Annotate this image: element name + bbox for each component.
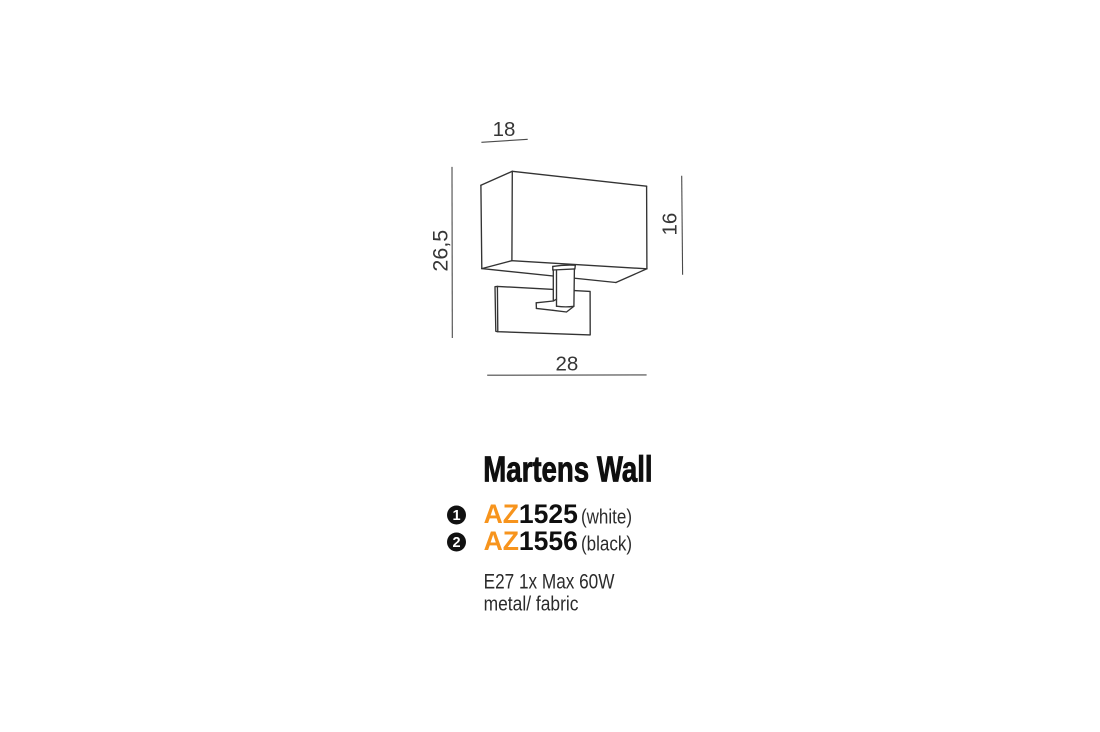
svg-text:metal/ fabric: metal/ fabric [484,593,579,616]
svg-text:18: 18 [493,118,516,141]
svg-text:1: 1 [452,508,460,524]
svg-text:E27 1x Max 60W: E27 1x Max 60W [484,570,615,594]
svg-text:28: 28 [555,353,578,376]
svg-text:2: 2 [452,535,460,551]
svg-text:AZ1525: AZ1525 [484,499,578,529]
svg-text:16: 16 [659,213,682,236]
svg-text:(white): (white) [581,505,632,528]
svg-text:26,5: 26,5 [429,230,453,272]
svg-text:(black): (black) [581,532,632,555]
svg-text:Martens Wall: Martens Wall [483,449,652,489]
svg-text:AZ1556: AZ1556 [484,526,578,556]
